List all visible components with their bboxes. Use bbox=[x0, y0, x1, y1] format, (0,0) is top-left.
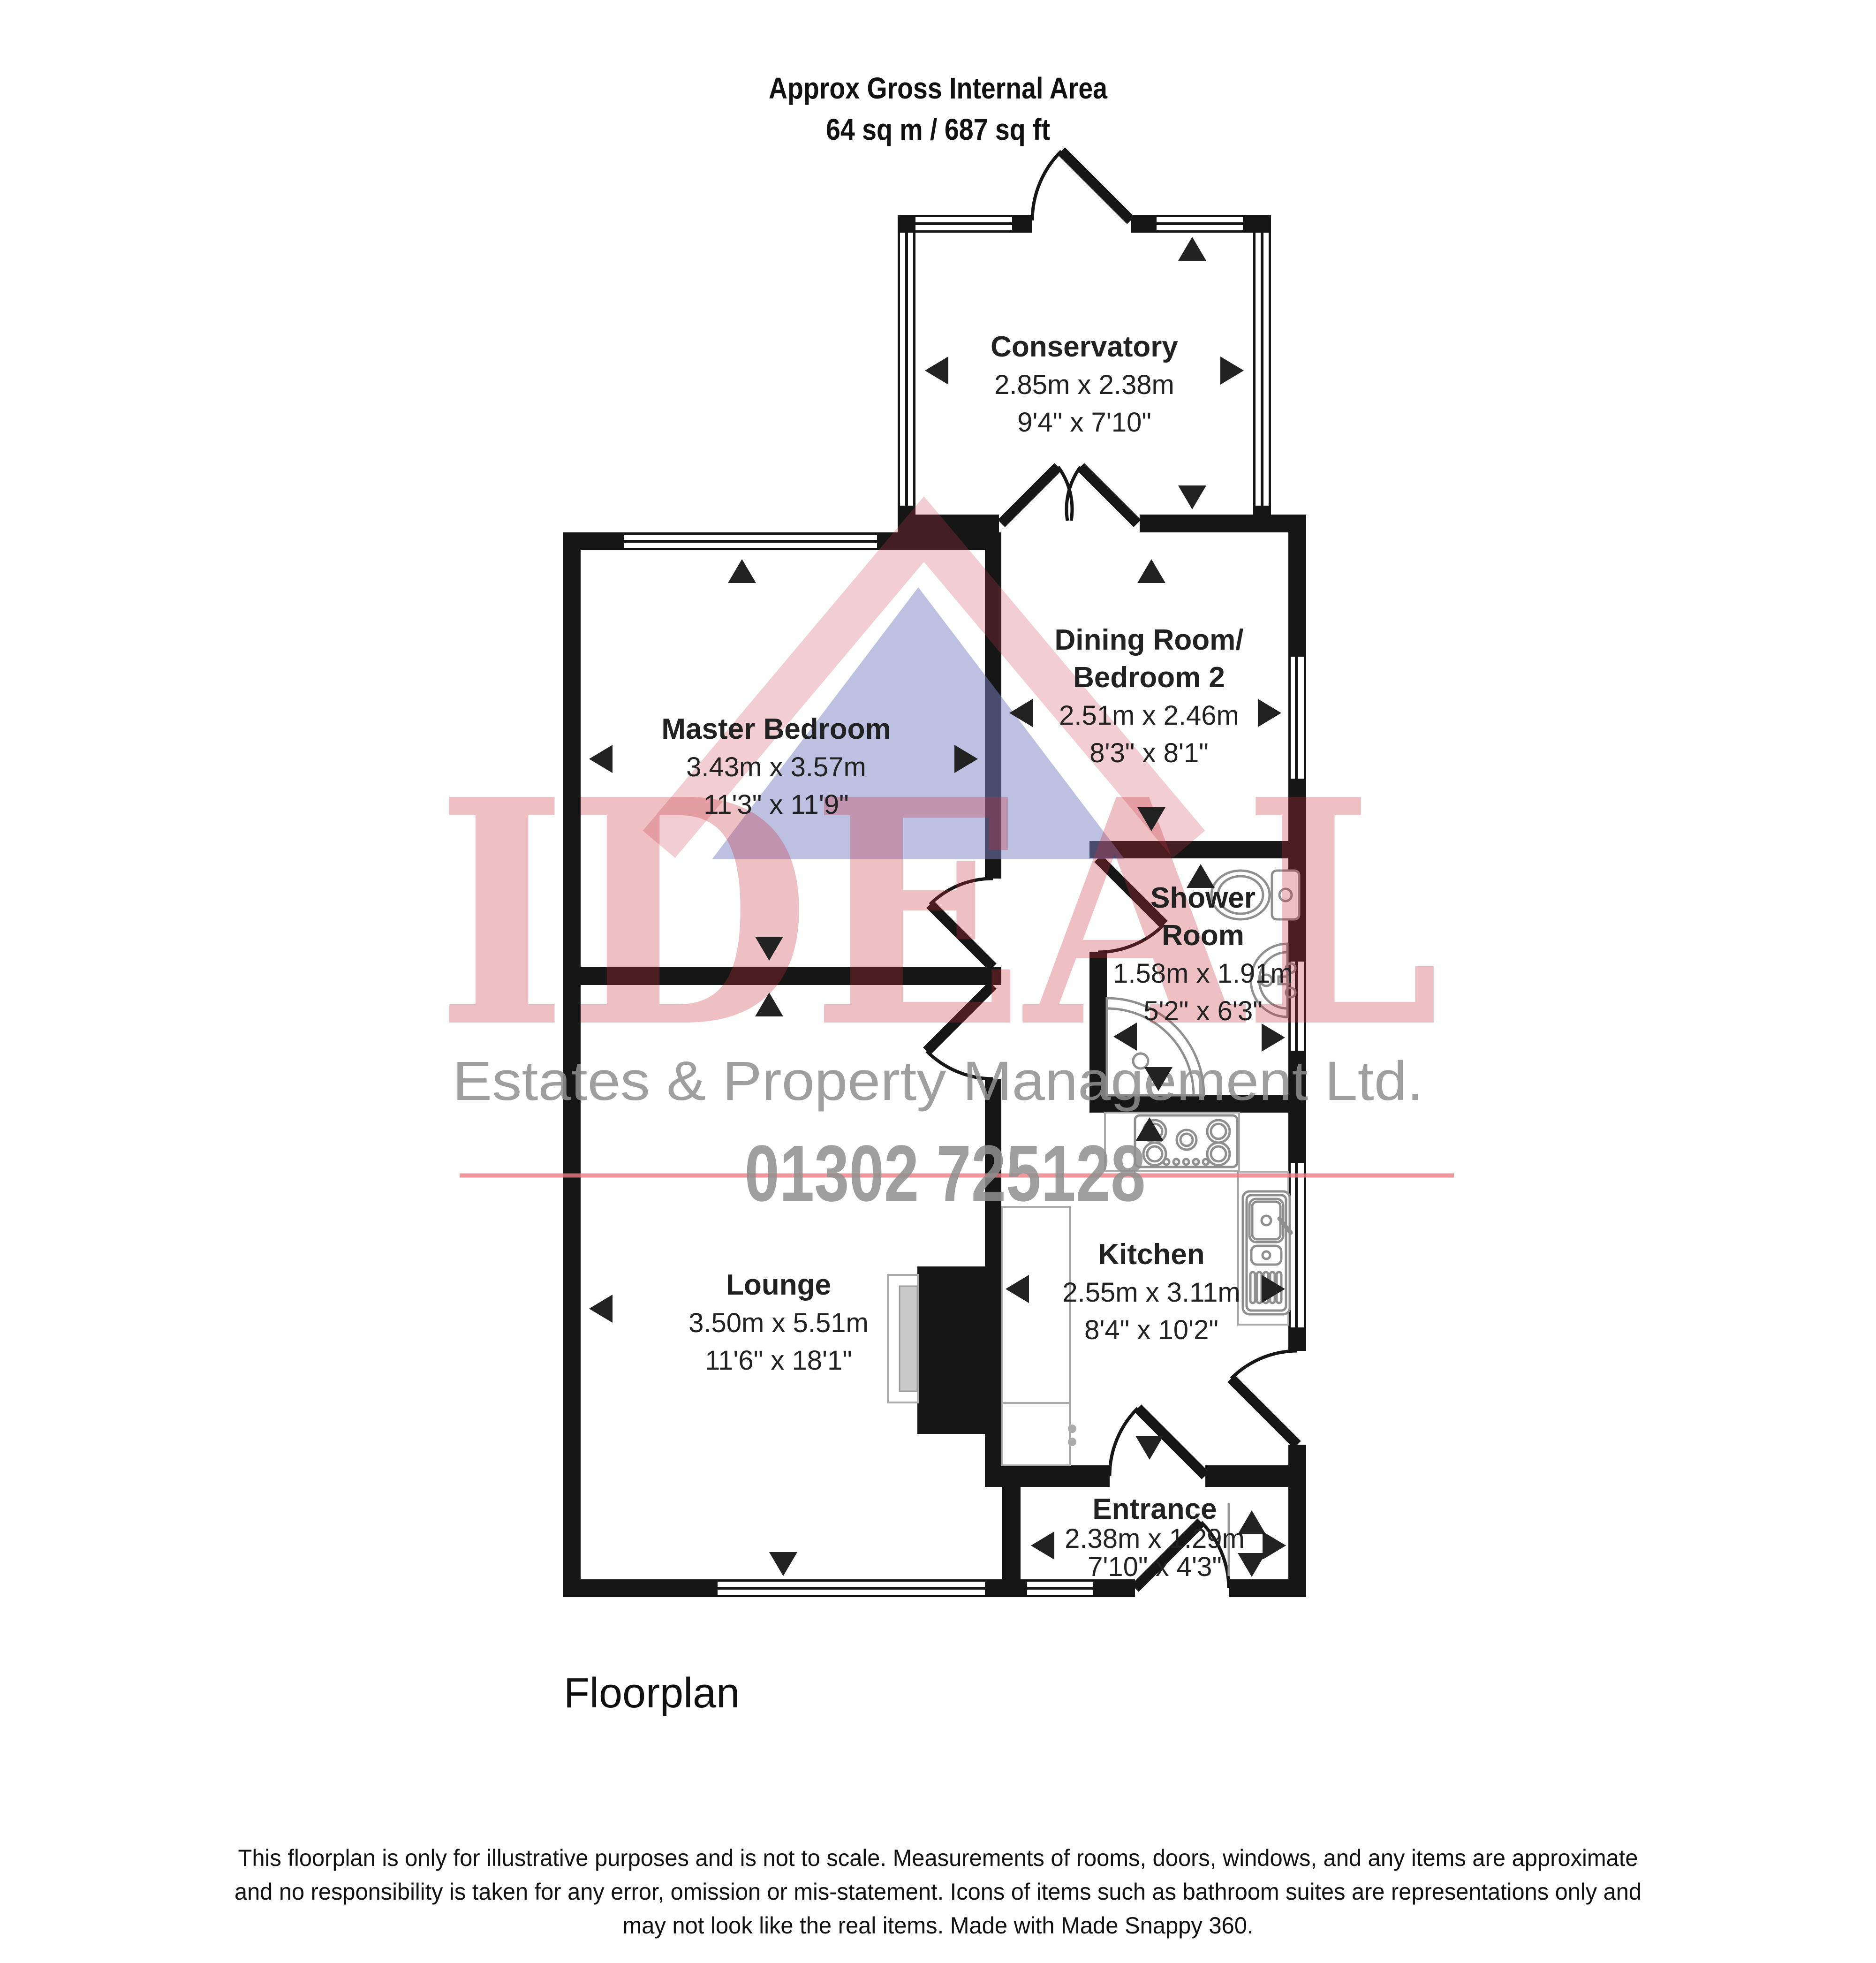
room-dims-metric: 1.58m x 1.91m bbox=[1113, 958, 1293, 989]
floorplan-page: Approx Gross Internal Area 64 sq m / 687… bbox=[0, 0, 1876, 1963]
arrow-right-icon bbox=[1263, 1531, 1286, 1560]
kitchen-counter-left bbox=[1002, 1207, 1070, 1403]
watermark-phone: 01302 725128 bbox=[745, 1129, 1146, 1218]
room-dims-metric: 2.85m x 2.38m bbox=[994, 370, 1174, 400]
watermark-brand: IDEAL bbox=[436, 732, 1440, 1096]
disclaimer-line-1: This floorplan is only for illustrative … bbox=[238, 1845, 1638, 1871]
room-dims-metric: 2.51m x 2.46m bbox=[1059, 700, 1239, 731]
conservatory-door-opening bbox=[1032, 215, 1131, 233]
room-dims-imperial: 11'3" x 11'9" bbox=[703, 789, 848, 820]
room-dims-imperial: 5'2" x 6'3" bbox=[1143, 996, 1263, 1026]
arrow-up-icon bbox=[1137, 559, 1165, 583]
disclaimer-line-2: and no responsibility is taken for any e… bbox=[234, 1879, 1641, 1905]
appliance-handle bbox=[1068, 1438, 1076, 1446]
floorplan-label: Floorplan bbox=[564, 1670, 740, 1717]
room-dims-imperial: 9'4" x 7'10" bbox=[1017, 407, 1151, 438]
room-name: Conservatory bbox=[991, 331, 1178, 363]
conservatory-exterior-door bbox=[1032, 151, 1131, 220]
room-name: Dining Room/ bbox=[1055, 624, 1244, 656]
arrow-down-icon bbox=[1135, 1436, 1164, 1460]
floorplan-canvas: Approx Gross Internal Area 64 sq m / 687… bbox=[0, 0, 1876, 1963]
room-label-entrance: Entrance 2.38m x 1.29m 7'10" x 4'3" bbox=[1065, 1493, 1245, 1582]
footer: Floorplan This floorplan is only for ill… bbox=[234, 1670, 1641, 1939]
chimney-breast bbox=[917, 1266, 1002, 1434]
arrow-down-icon bbox=[1238, 1553, 1266, 1577]
arrow-up-icon bbox=[728, 559, 756, 583]
kitchen-appliance bbox=[1002, 1403, 1070, 1465]
arrow-up-icon bbox=[1178, 237, 1206, 261]
room-label-kitchen: Kitchen 2.55m x 3.11m 8'4" x 10'2" bbox=[1062, 1238, 1240, 1345]
arrow-left-icon bbox=[1031, 1531, 1054, 1560]
room-dims-imperial: 7'10" x 4'3" bbox=[1088, 1552, 1222, 1582]
room-name: Bedroom 2 bbox=[1073, 661, 1225, 694]
back-door bbox=[1231, 1351, 1297, 1445]
gross-internal-area-label: Approx Gross Internal Area bbox=[769, 71, 1107, 105]
appliance-handle bbox=[1068, 1425, 1076, 1433]
tv-icon bbox=[888, 1275, 918, 1402]
room-dims-metric: 3.50m x 5.51m bbox=[688, 1308, 869, 1338]
watermark-tagline: Estates & Property Management Ltd. bbox=[453, 1050, 1423, 1112]
disclaimer-line-3: may not look like the real items. Made w… bbox=[623, 1912, 1254, 1939]
conservatory-french-doors bbox=[1001, 467, 1137, 523]
room-dims-metric: 3.43m x 3.57m bbox=[686, 752, 866, 782]
arrow-right-icon bbox=[1258, 699, 1281, 727]
room-name: Kitchen bbox=[1098, 1238, 1204, 1271]
room-dims-imperial: 11'6" x 18'1" bbox=[705, 1345, 852, 1376]
room-dims-imperial: 8'4" x 10'2" bbox=[1084, 1315, 1218, 1345]
room-name: Master Bedroom bbox=[661, 713, 891, 745]
room-dims-metric: 2.55m x 3.11m bbox=[1062, 1277, 1240, 1308]
room-dims-metric: 2.38m x 1.29m bbox=[1065, 1523, 1245, 1554]
room-label-lounge: Lounge 3.50m x 5.51m 11'6" x 18'1" bbox=[688, 1269, 869, 1376]
header: Approx Gross Internal Area 64 sq m / 687… bbox=[769, 71, 1107, 146]
gross-internal-area-value: 64 sq m / 687 sq ft bbox=[826, 113, 1050, 146]
room-label-conservatory: Conservatory 2.85m x 2.38m 9'4" x 7'10" bbox=[991, 331, 1178, 438]
room-dims-imperial: 8'3" x 8'1" bbox=[1089, 738, 1209, 768]
room-name: Lounge bbox=[726, 1269, 831, 1301]
room-name: Room bbox=[1162, 919, 1244, 952]
arrow-down-icon bbox=[1178, 485, 1206, 509]
room-name: Entrance bbox=[1092, 1493, 1217, 1525]
back-door-opening bbox=[1288, 1351, 1306, 1445]
arrow-left-icon bbox=[589, 1295, 613, 1323]
arrow-right-icon bbox=[1220, 356, 1244, 385]
arrow-left-icon bbox=[925, 356, 948, 385]
room-name: Shower bbox=[1150, 882, 1256, 914]
arrow-down-icon bbox=[769, 1552, 797, 1576]
